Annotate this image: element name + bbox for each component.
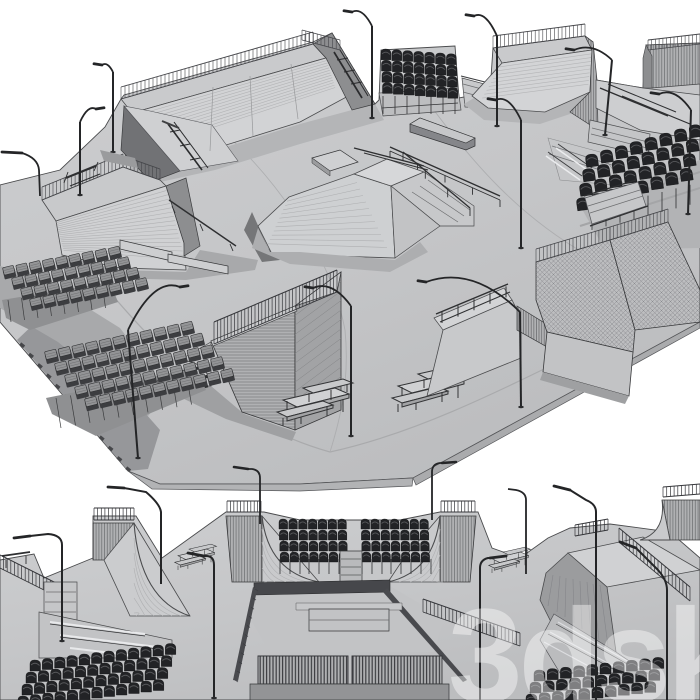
svg-text:3dsky: 3dsky	[448, 582, 700, 700]
